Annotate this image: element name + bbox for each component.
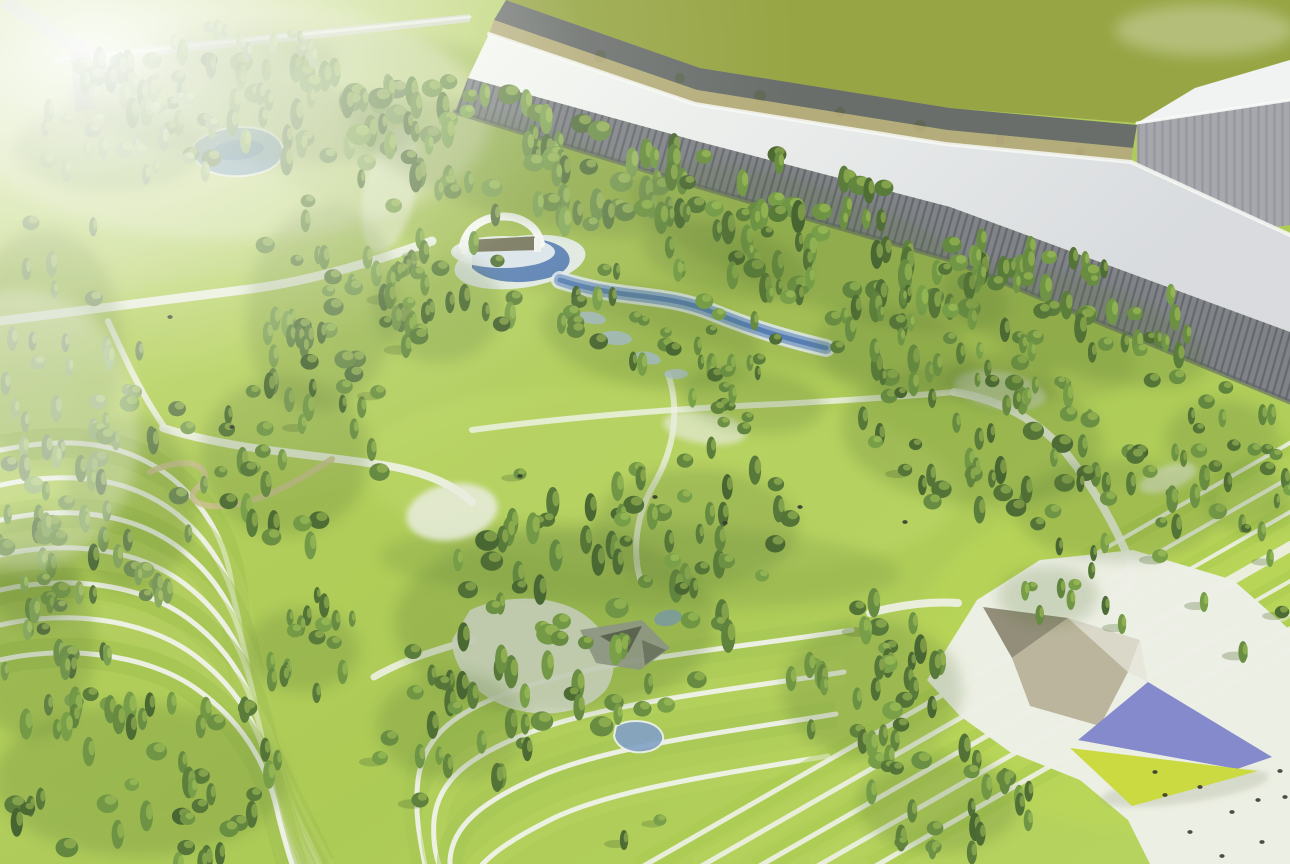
glare-overlay — [0, 0, 1290, 864]
park-rendering-canvas — [0, 0, 1290, 864]
park-aerial-rendering — [0, 0, 1290, 864]
